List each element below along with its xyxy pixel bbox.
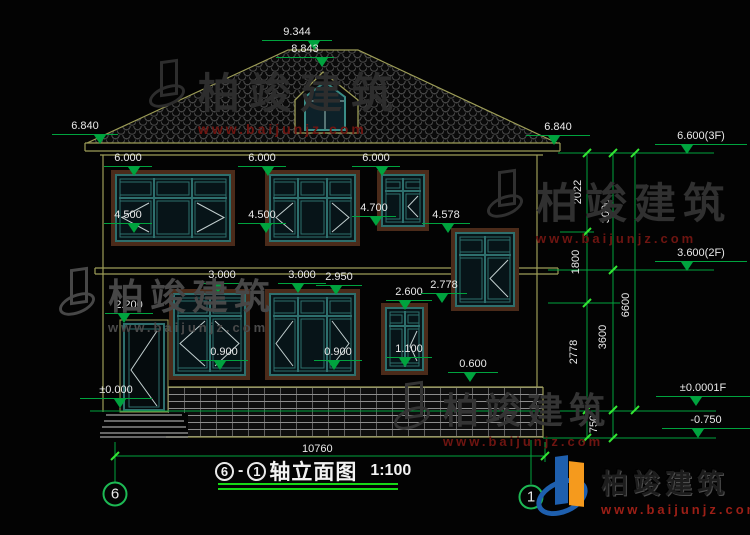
overall-width-label: 10760 — [302, 443, 333, 455]
title-name: 轴立面图 — [269, 456, 357, 486]
brand-logo: 柏竣建筑 www.baijunjz.com — [537, 452, 750, 526]
window — [111, 170, 235, 246]
window — [169, 289, 250, 380]
window — [381, 303, 428, 375]
window — [265, 289, 360, 380]
logo-building-blue-icon — [555, 455, 568, 505]
chain-dim-label: 750 — [588, 415, 600, 433]
window — [265, 170, 360, 246]
chain-dim-label: 6600 — [620, 293, 632, 317]
dormer — [295, 72, 358, 133]
chain-dim-label: 3600 — [597, 325, 609, 349]
title-dash: - — [238, 462, 243, 480]
step-lines — [100, 415, 188, 437]
window — [377, 170, 429, 231]
cad-elevation-drawing: 9.3448.8436.8406.8406.600(3F)6.0006.0006… — [0, 0, 750, 535]
title-axis-from: 6 — [215, 462, 234, 481]
chain-dim-label: 2778 — [568, 340, 580, 364]
brand-url: www.baijunjz.com — [601, 502, 750, 517]
chain-dim-label: 2022 — [572, 180, 584, 204]
chain-dim-label: 1800 — [570, 250, 582, 274]
chain-dim-label: 3000 — [600, 199, 612, 223]
title-axis-to: 1 — [247, 462, 266, 481]
brand-name: 柏竣建筑 — [601, 462, 750, 501]
entry-door — [120, 320, 168, 412]
window — [451, 228, 519, 311]
axis-bubble: 6 — [103, 482, 128, 507]
drawing-title: 6 - 1 轴立面图 1:100 — [215, 456, 411, 486]
brand-logo-icon — [537, 452, 593, 526]
logo-building-orange-icon — [569, 461, 584, 507]
title-scale: 1:100 — [370, 462, 411, 480]
